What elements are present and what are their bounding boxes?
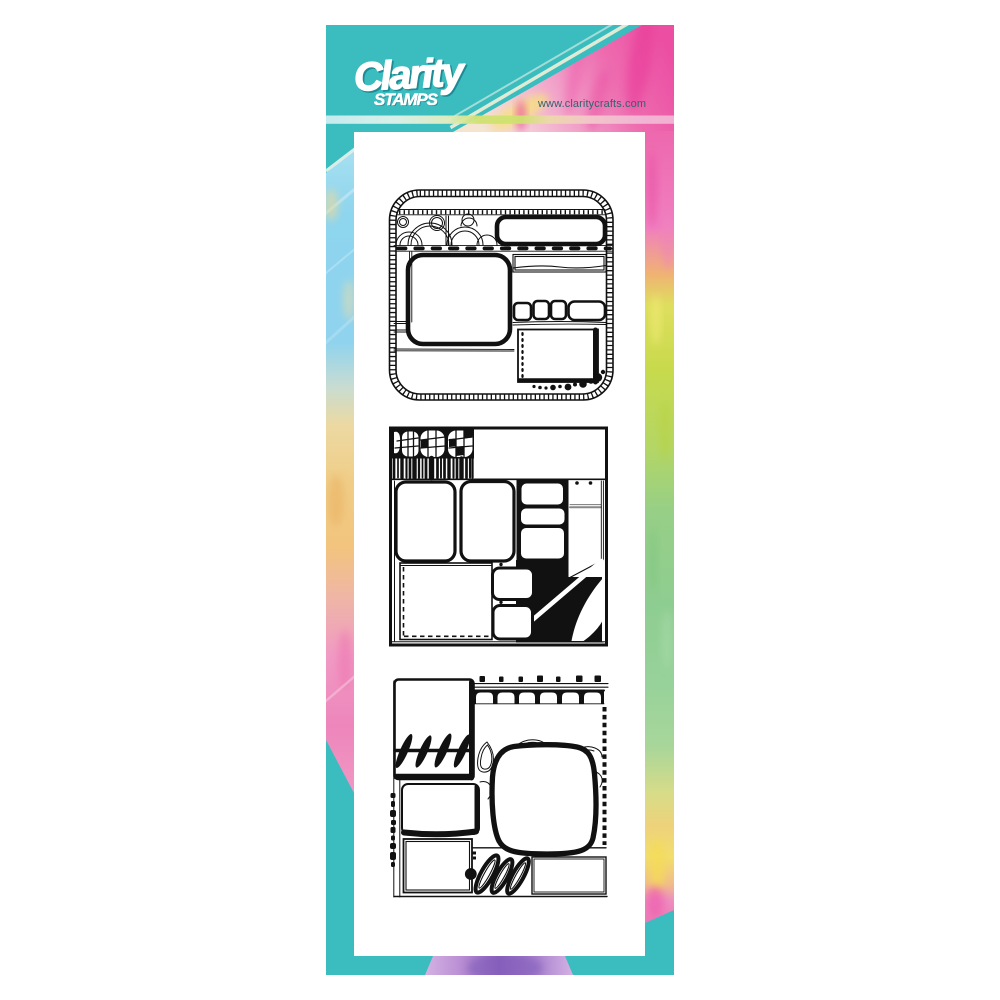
svg-text:STAMPS: STAMPS [374,90,439,109]
svg-text:www.claritycrafts.com: www.claritycrafts.com [537,98,646,110]
